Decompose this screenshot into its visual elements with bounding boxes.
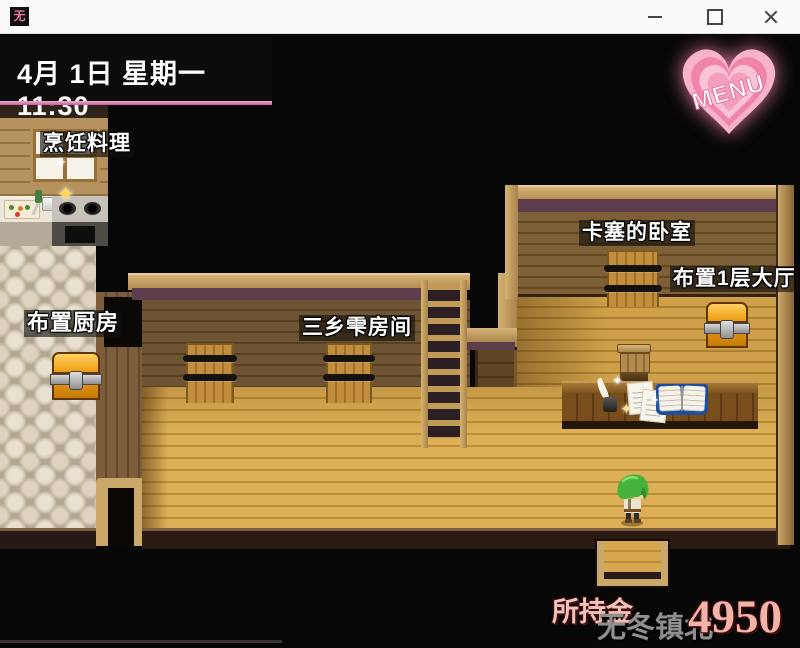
middle-room-purple-trim: [132, 288, 466, 300]
stove-burner: [84, 202, 101, 215]
sparkle-icon: ✦: [56, 183, 75, 206]
minimize-button[interactable]: [632, 0, 678, 33]
player-character[interactable]: [615, 473, 651, 531]
door-right-middle-room[interactable]: [326, 343, 372, 403]
chest-lock-icon: [69, 371, 83, 390]
datetime-text: 4月 1日 星期一 11:30: [17, 52, 272, 122]
kitchen-baseboard: [0, 528, 96, 549]
minimize-icon: [648, 16, 662, 18]
maximize-icon: [707, 9, 723, 25]
cutting-board: [4, 200, 40, 219]
label-arrange-kitchen: 布置厨房: [24, 310, 122, 337]
sparkle-icon: ✦: [620, 402, 633, 417]
open-book[interactable]: [656, 384, 708, 415]
corner-purple-trim: [462, 342, 515, 350]
chest-lock-icon: [720, 320, 734, 339]
menu-button[interactable]: MENU: [668, 40, 790, 142]
label-cooking: 烹饪料理: [40, 131, 134, 157]
right-room-purple-trim: [518, 199, 776, 212]
hallway-lower-doorway: [108, 488, 134, 546]
ink-bottle-icon: [603, 397, 617, 412]
datetime-underline: [0, 101, 272, 105]
knife-icon: [32, 203, 39, 215]
hall-chest[interactable]: [706, 302, 748, 348]
close-icon: [763, 9, 779, 25]
floor-shadow: [142, 387, 168, 528]
corner-beam-horizontal: [460, 328, 517, 342]
label-arrange-hall: 布置1层大厅: [670, 266, 799, 292]
bottom-accent-line: [0, 640, 282, 643]
window-titlebar: 无: [0, 0, 800, 34]
sparkle-icon: ✦: [650, 396, 659, 407]
exit-step-doorway: [597, 541, 668, 586]
close-button[interactable]: [748, 0, 794, 33]
green-bottle: [35, 190, 42, 203]
ladder-rungs: [428, 284, 460, 438]
label-misato-room: 三乡雫房间: [299, 315, 415, 341]
kitchen-chest[interactable]: [52, 352, 100, 400]
door-left-middle-room[interactable]: [186, 343, 234, 403]
ladder[interactable]: [421, 280, 467, 448]
money-value: 4950: [640, 594, 782, 641]
maximize-button[interactable]: [692, 0, 738, 33]
window-icon: 无: [10, 7, 29, 26]
label-kase-bedroom: 卡塞的卧室: [579, 220, 695, 246]
floor-baseboard: [142, 528, 790, 549]
datetime-panel: 4月 1日 星期一 11:30: [0, 37, 272, 101]
door-kase-bedroom[interactable]: [607, 250, 659, 307]
sparkle-icon: ✦: [55, 155, 67, 169]
oven-opening: [65, 226, 95, 243]
sparkle-icon: ✦: [612, 374, 623, 387]
game-window: ✦ ✦ ✦ ✦ ✦ ✦ 烹饪料理 布置厨房 三乡雫房间 卡塞的卧室 布置1层大厅…: [0, 0, 800, 648]
right-room-left-beam: [505, 185, 518, 299]
right-room-right-beam: [776, 185, 794, 545]
